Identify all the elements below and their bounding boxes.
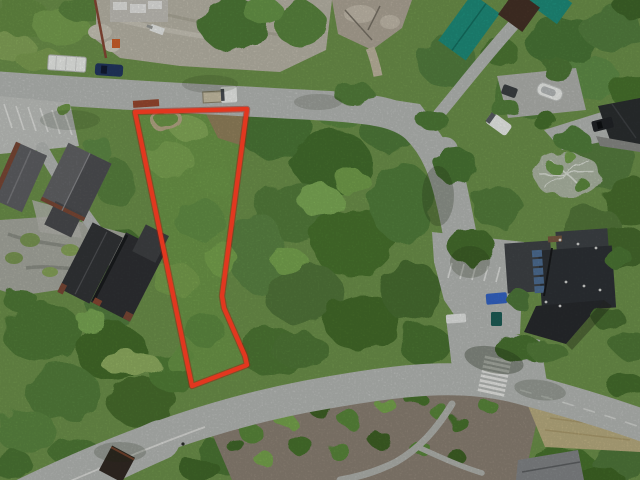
aerial-photo: [0, 0, 640, 480]
screenshot-root: [0, 0, 640, 480]
photo-grain: [0, 0, 640, 480]
